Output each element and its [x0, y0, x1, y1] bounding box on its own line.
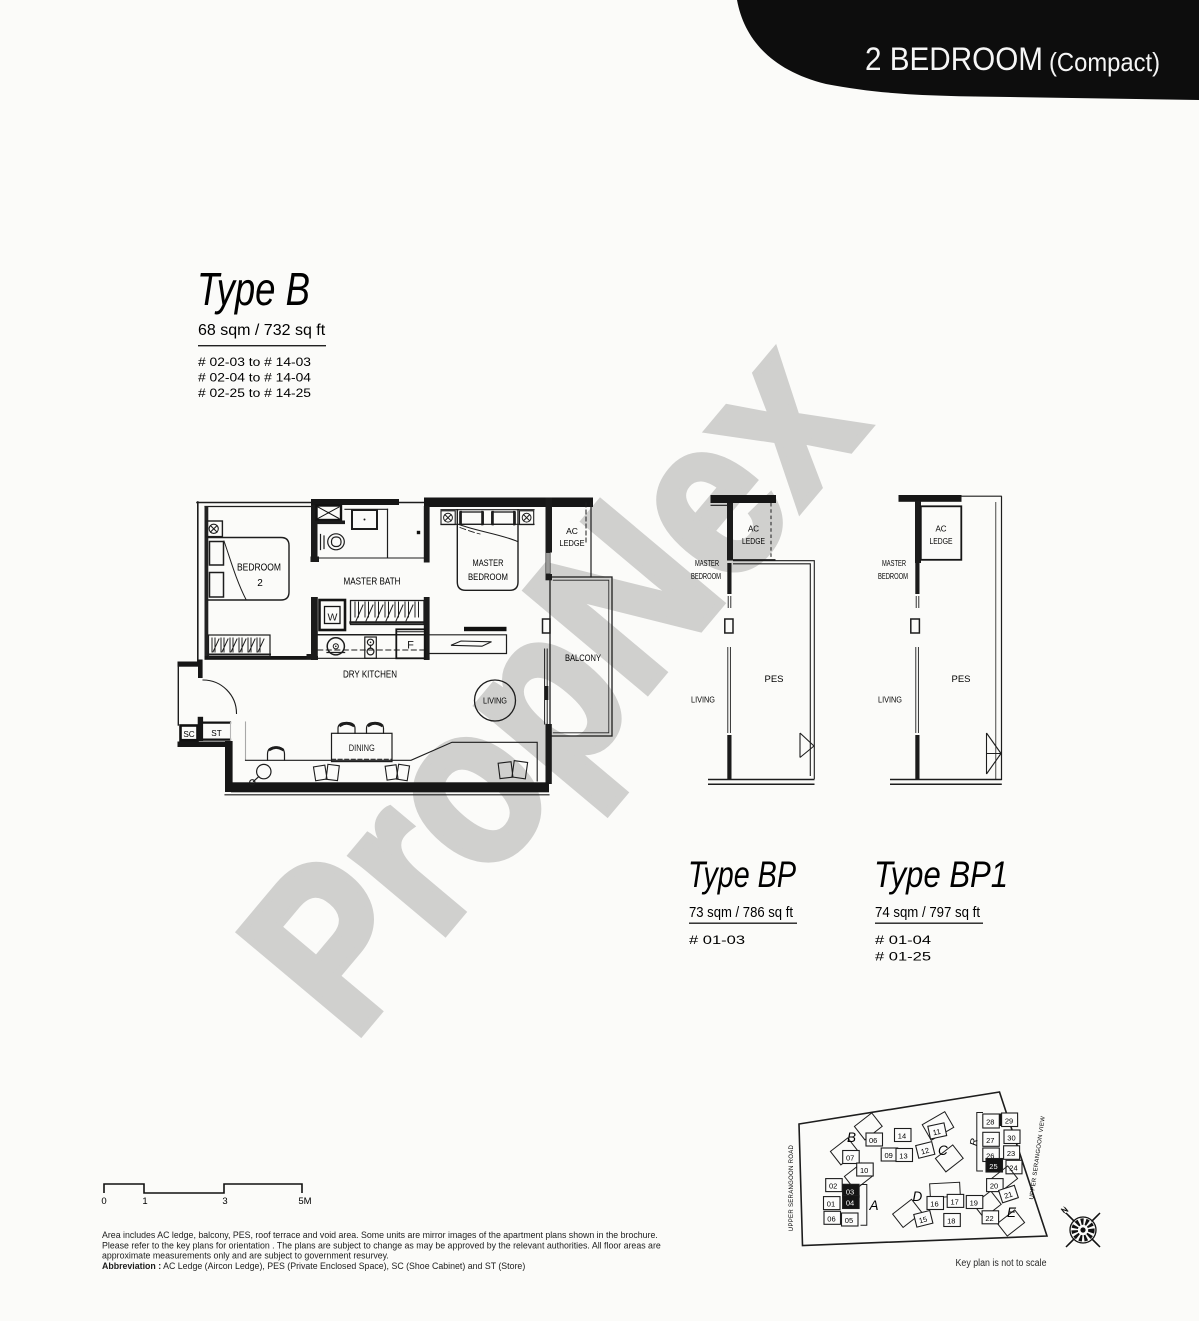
svg-text:04: 04 — [846, 1199, 854, 1208]
svg-text:29: 29 — [1005, 1116, 1013, 1125]
svg-text:13: 13 — [899, 1152, 907, 1161]
svg-text:09: 09 — [885, 1151, 893, 1160]
svg-text:PES: PES — [951, 674, 970, 685]
svg-text:LEDGE: LEDGE — [560, 538, 585, 548]
svg-text:BEDROOM: BEDROOM — [878, 572, 908, 581]
svg-text:F: F — [407, 640, 414, 652]
svg-text:LEDGE: LEDGE — [930, 537, 953, 546]
svg-text:14: 14 — [898, 1132, 906, 1141]
svg-text:17: 17 — [951, 1197, 959, 1206]
svg-text:2 BEDROOM: 2 BEDROOM — [865, 41, 1043, 77]
svg-text:74 sqm / 797 sq ft: 74 sqm / 797 sq ft — [875, 905, 980, 921]
svg-text:# 01-03: # 01-03 — [689, 933, 745, 947]
svg-text:BEDROOM: BEDROOM — [237, 563, 281, 574]
svg-text:(Compact): (Compact) — [1049, 47, 1160, 77]
svg-text:LIVING: LIVING — [878, 696, 902, 705]
svg-text:5M: 5M — [298, 1196, 311, 1207]
svg-text:BALCONY: BALCONY — [565, 653, 601, 663]
svg-text:Please refer to the key plans: Please refer to the key plans for orient… — [102, 1240, 661, 1250]
svg-text:E: E — [1007, 1205, 1017, 1220]
svg-text:# 01-25: # 01-25 — [875, 950, 931, 964]
svg-text:Key plan is not to scale: Key plan is not to scale — [956, 1258, 1047, 1269]
svg-text:24: 24 — [1009, 1164, 1017, 1173]
svg-text:D: D — [913, 1189, 923, 1204]
svg-text:BEDROOM: BEDROOM — [468, 572, 508, 582]
svg-text:B: B — [847, 1130, 856, 1145]
svg-text:MASTER: MASTER — [882, 559, 906, 568]
svg-text:BEDROOM: BEDROOM — [691, 572, 721, 581]
svg-text:LEDGE: LEDGE — [742, 537, 765, 546]
svg-text:22: 22 — [985, 1214, 993, 1223]
svg-text:AC: AC — [935, 525, 946, 534]
svg-text:LIVING: LIVING — [483, 696, 507, 706]
svg-text:DRY KITCHEN: DRY KITCHEN — [343, 669, 397, 681]
svg-text:73 sqm / 786 sq ft: 73 sqm / 786 sq ft — [689, 905, 793, 921]
svg-text:AC: AC — [748, 525, 759, 534]
svg-text:Type BP1: Type BP1 — [874, 854, 1008, 895]
svg-text:23: 23 — [1007, 1149, 1015, 1158]
svg-text:06: 06 — [827, 1214, 835, 1223]
svg-text:# 01-04: # 01-04 — [875, 933, 931, 947]
svg-text:MASTER BATH: MASTER BATH — [344, 576, 401, 588]
svg-text:UPPER SERANGOON ROAD: UPPER SERANGOON ROAD — [789, 1144, 795, 1231]
svg-text:16: 16 — [930, 1200, 938, 1209]
svg-text:Type B: Type B — [197, 263, 310, 315]
svg-text:Area includes AC ledge, balcon: Area includes AC ledge, balcony, PES, ro… — [102, 1230, 658, 1240]
svg-text:10: 10 — [860, 1166, 868, 1175]
svg-text:approximate measurements only: approximate measurements only and are su… — [102, 1251, 389, 1261]
svg-text:25: 25 — [989, 1162, 997, 1171]
svg-text:LIVING: LIVING — [691, 696, 715, 705]
svg-text:DINING: DINING — [349, 743, 375, 753]
svg-text:07: 07 — [846, 1154, 854, 1163]
svg-text:06: 06 — [869, 1136, 877, 1145]
svg-text:3: 3 — [222, 1196, 227, 1207]
svg-text:ST: ST — [211, 729, 221, 738]
svg-text:28: 28 — [986, 1118, 994, 1127]
svg-text:C: C — [938, 1143, 948, 1158]
svg-text:1: 1 — [142, 1196, 147, 1207]
svg-text:68 sqm / 732 sq ft: 68 sqm / 732 sq ft — [198, 322, 326, 339]
svg-text:01: 01 — [827, 1200, 835, 1209]
svg-text:SC: SC — [183, 730, 194, 739]
svg-text:W: W — [328, 612, 338, 624]
svg-text:2: 2 — [257, 578, 263, 589]
svg-text:# 02-03 to # 14-03: # 02-03 to # 14-03 — [198, 355, 311, 369]
svg-text:AC: AC — [566, 526, 578, 536]
svg-text:# 02-25 to # 14-25: # 02-25 to # 14-25 — [198, 386, 311, 400]
svg-text:19: 19 — [970, 1199, 978, 1208]
svg-text:MASTER: MASTER — [473, 558, 504, 568]
svg-text:MASTER: MASTER — [695, 559, 719, 568]
svg-text:# 02-04 to # 14-04: # 02-04 to # 14-04 — [198, 371, 311, 385]
svg-text:18: 18 — [947, 1217, 955, 1226]
svg-text:30: 30 — [1007, 1133, 1015, 1142]
svg-text:PES: PES — [764, 674, 783, 685]
svg-text:27: 27 — [986, 1136, 994, 1145]
svg-text:20: 20 — [990, 1182, 998, 1191]
svg-text:02: 02 — [829, 1182, 837, 1191]
svg-text:05: 05 — [845, 1216, 853, 1225]
svg-text:Abbreviation : AC Ledge (Airc: Abbreviation : AC Ledge (Aircon Ledge), … — [102, 1261, 525, 1271]
svg-text:0: 0 — [101, 1196, 106, 1207]
svg-text:A: A — [869, 1198, 879, 1213]
svg-text:Type BP: Type BP — [688, 854, 796, 895]
